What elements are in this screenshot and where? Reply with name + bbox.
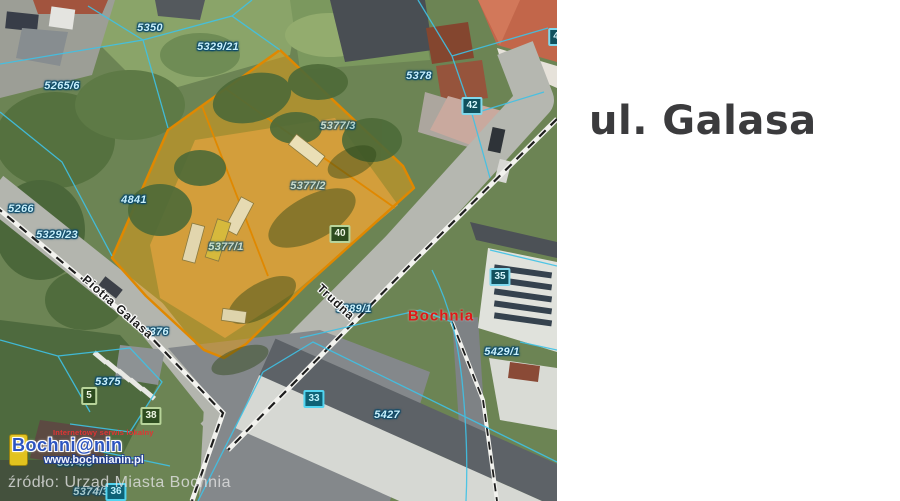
parcel-label: 5377/2	[290, 180, 325, 192]
parcel-label: 5427	[374, 409, 400, 421]
parcel-label: 5329/21	[197, 41, 239, 53]
parcel-label: 5375	[95, 376, 121, 388]
parcel-label: 5350	[137, 22, 163, 34]
address-badge: 42	[461, 97, 482, 115]
parcel-label: 5266	[8, 203, 34, 215]
parcel-label: 4841	[121, 194, 147, 206]
source-credit: źródło: Urząd Miasta Bochnia	[8, 474, 231, 492]
city-label: Bochnia	[408, 308, 474, 325]
brand-logo: Internetowy serwis lokalny Bochni@nin ww…	[8, 426, 168, 470]
address-badge: 38	[140, 407, 161, 425]
address-badge: 33	[303, 390, 324, 408]
parcel-label: 5377/1	[208, 241, 243, 253]
address-badge: 40	[329, 225, 350, 243]
logo-brand-name: Bochni@nin	[12, 435, 123, 456]
aerial-map-image: 5350 5329/21 5265/6 5266 4841 5329/23 53…	[0, 0, 557, 501]
title-panel: ul. Galasa	[557, 0, 900, 501]
address-badge: 5	[81, 387, 97, 405]
parcel-label: 5378	[406, 70, 432, 82]
parcel-label: 5429/1	[484, 346, 519, 358]
parcel-label: 5377/3	[320, 120, 355, 132]
page-title: ul. Galasa	[589, 98, 817, 144]
slide: 5350 5329/21 5265/6 5266 4841 5329/23 53…	[0, 0, 900, 501]
logo-url: www.bochnianin.pl	[44, 454, 144, 466]
parcel-label: 5265/6	[44, 80, 79, 92]
address-badge: 35	[489, 268, 510, 286]
address-badge: 4	[548, 28, 557, 46]
parcel-label: 5329/23	[36, 229, 78, 241]
